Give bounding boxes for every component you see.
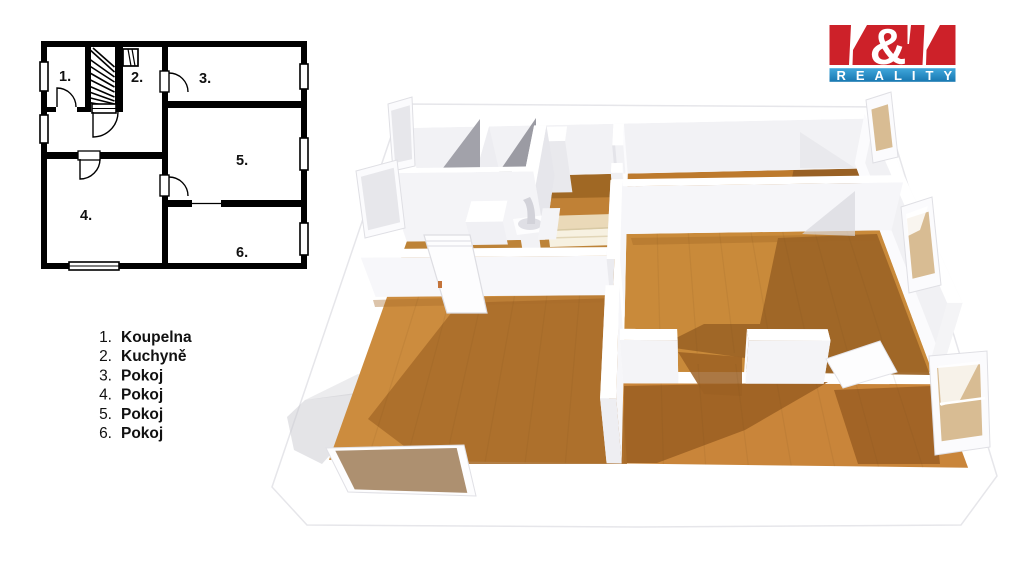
svg-text:Pokoj: Pokoj: [121, 387, 163, 404]
svg-text:1.: 1.: [59, 69, 71, 85]
svg-text:&: &: [870, 18, 907, 75]
svg-text:2.: 2.: [99, 348, 112, 365]
svg-text:5.: 5.: [236, 153, 248, 169]
svg-text:3.: 3.: [99, 367, 112, 384]
svg-text:6.: 6.: [236, 245, 248, 261]
svg-text:6.: 6.: [99, 425, 112, 442]
svg-text:4.: 4.: [99, 387, 112, 404]
svg-text:5.: 5.: [99, 406, 112, 423]
svg-text:Pokoj: Pokoj: [121, 425, 163, 442]
svg-text:Kuchyně: Kuchyně: [121, 348, 187, 365]
svg-text:4.: 4.: [80, 208, 92, 224]
svg-text:Koupelna: Koupelna: [121, 329, 192, 346]
svg-text:Pokoj: Pokoj: [121, 406, 163, 423]
svg-text:Pokoj: Pokoj: [121, 367, 163, 384]
svg-text:1.: 1.: [99, 329, 112, 346]
svg-text:REALITY: REALITY: [837, 68, 963, 83]
svg-text:3.: 3.: [199, 71, 211, 87]
svg-text:2.: 2.: [131, 70, 143, 86]
